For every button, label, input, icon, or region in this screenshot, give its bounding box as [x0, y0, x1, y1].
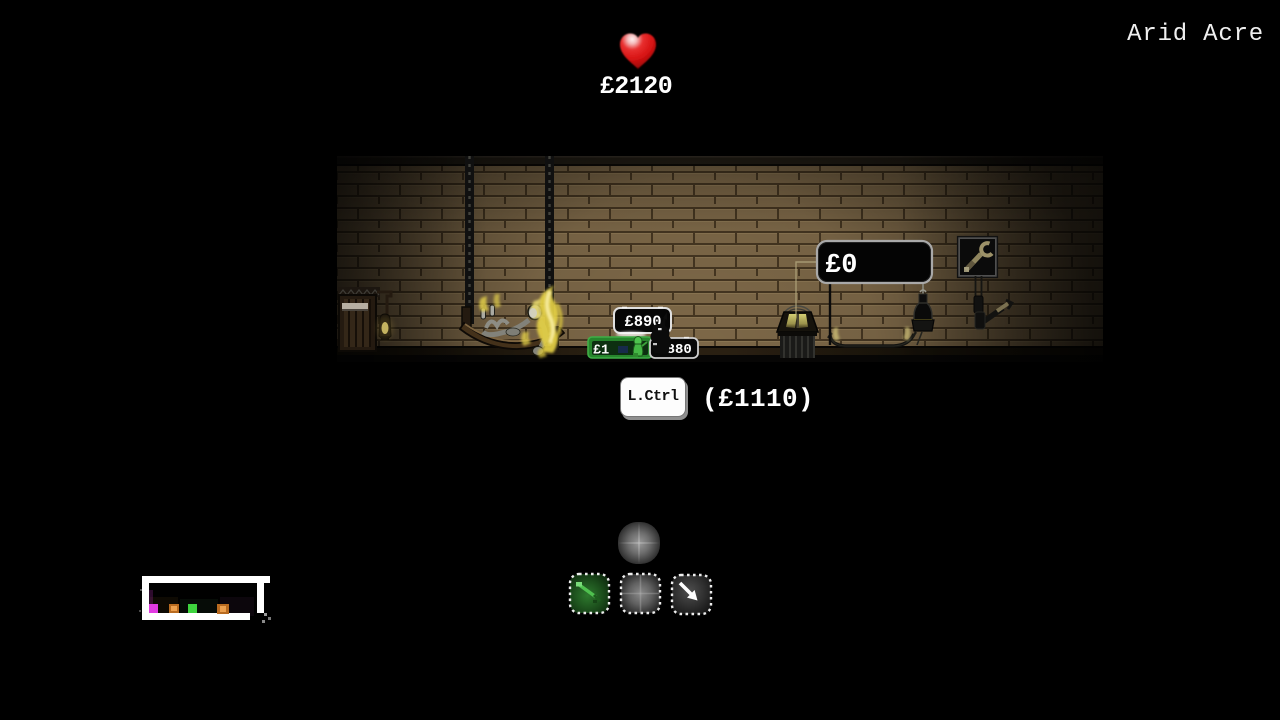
svg-text:£1: £1: [593, 344, 609, 359]
svg-text:£0: £0: [825, 251, 857, 281]
